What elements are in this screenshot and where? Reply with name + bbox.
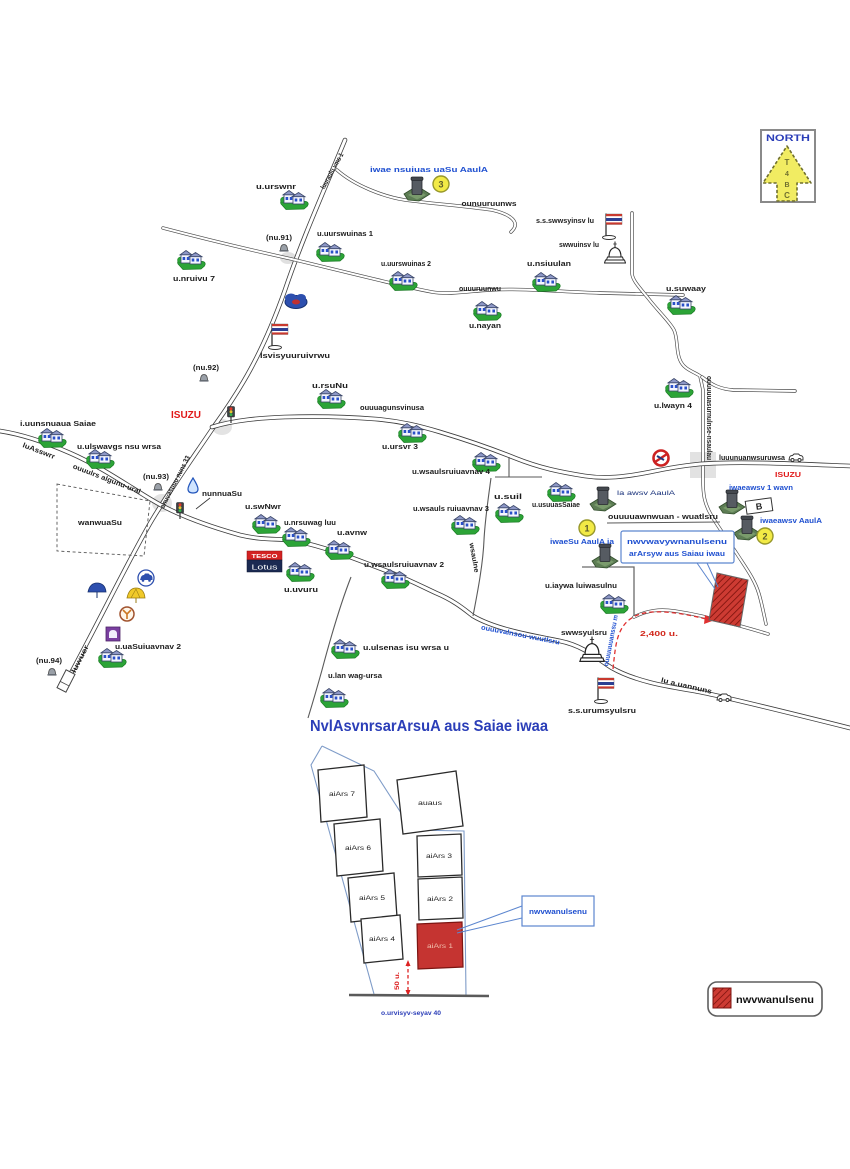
svg-text:u.wsauls ruiuavnav 3: u.wsauls ruiuavnav 3 [413,506,489,513]
svg-text:u.suil: u.suil [494,494,522,501]
svg-text:swwuinsv lu: swwuinsv lu [559,242,599,249]
svg-text:u.avnw: u.avnw [337,530,368,537]
svg-text:u.iaywa luiwasulnu: u.iaywa luiwasulnu [545,583,617,590]
svg-text:u.urswnr: u.urswnr [256,184,296,191]
svg-text:nwvwavywnanulsenu: nwvwavywnanulsenu [627,539,727,546]
svg-text:B: B [784,182,789,189]
svg-text:swwsyulsru: swwsyulsru [561,630,607,637]
svg-text:(nu.91): (nu.91) [266,235,292,242]
svg-text:u.ulswavgs nsu wrsa: u.ulswavgs nsu wrsa [77,444,161,451]
svg-text:nunnuaSu: nunnuaSu [202,491,242,498]
svg-text:u.suwaay: u.suwaay [666,286,706,293]
svg-text:u.rsuNu: u.rsuNu [312,383,348,390]
svg-text:u.uurswuinas 2: u.uurswuinas 2 [381,261,431,268]
svg-text:C: C [784,191,790,200]
svg-text:wanwuaSu: wanwuaSu [77,520,122,527]
svg-text:ouuuuuasurnulnse-nsaulau: ouuuuuasurnulnse-nsaulau [705,376,712,460]
svg-text:u.ursvr 3: u.ursvr 3 [382,444,418,451]
svg-text:iwaeawsv 1 wavn: iwaeawsv 1 wavn [729,485,793,492]
svg-text:T: T [785,158,790,167]
svg-text:(nu.93): (nu.93) [143,474,169,481]
svg-text:aiArs 2: aiArs 2 [427,897,454,903]
svg-text:o.urvisyv-seyav 40: o.urvisyv-seyav 40 [381,1010,441,1017]
svg-text:aiArs 6: aiArs 6 [345,846,372,852]
svg-text:iwaeSu AaulA ia: iwaeSu AaulA ia [550,539,614,546]
svg-text:u.wsaulsruiuavnav 2: u.wsaulsruiuavnav 2 [364,562,444,569]
svg-text:u.wsaulsruiuavnav 4: u.wsaulsruiuavnav 4 [412,469,490,476]
svg-text:NvlAsvnrsarArsuA aus Saiae iwa: NvlAsvnrsarArsuA aus Saiae iwaa [310,718,548,735]
svg-text:u.nruivu 7: u.nruivu 7 [173,276,215,283]
svg-text:aiArs 7: aiArs 7 [329,792,356,798]
svg-text:ISUZU: ISUZU [171,410,201,421]
svg-text:auaus: auaus [418,801,442,807]
svg-text:3: 3 [438,180,443,190]
svg-text:2,400 u.: 2,400 u. [640,629,678,638]
svg-text:NORTH: NORTH [766,133,810,143]
svg-text:luuunuanwsuruwsa: luuunuanwsuruwsa [719,455,785,462]
svg-text:u.uaSuiuavnav 2: u.uaSuiuavnav 2 [115,644,181,651]
svg-text:u.nsiuulan: u.nsiuulan [527,261,571,268]
svg-text:(nu.94): (nu.94) [36,658,62,665]
svg-text:2: 2 [762,532,767,542]
svg-text:u.usuuasSaiae: u.usuuasSaiae [532,502,580,509]
svg-text:u.ulsenas isu wrsa u: u.ulsenas isu wrsa u [363,645,449,652]
svg-text:aiArs 4: aiArs 4 [369,937,396,943]
svg-text:u.nayan: u.nayan [469,323,501,330]
svg-text:iwaeawsv AaulA: iwaeawsv AaulA [760,518,822,525]
svg-text:u.uurswuinas 1: u.uurswuinas 1 [317,231,373,238]
svg-text:4: 4 [785,171,789,178]
svg-text:ouuuruunwu: ouuuruunwu [459,286,501,293]
svg-text:s.s.swwsyinsv lu: s.s.swwsyinsv lu [536,218,594,225]
svg-text:lsvisyuuruivrwu: lsvisyuuruivrwu [260,353,330,360]
svg-text:arArsyw aus Saiau iwau: arArsyw aus Saiau iwau [629,551,725,558]
svg-text:la awsv AaulA: la awsv AaulA [617,490,676,497]
svg-text:i.uunsnuaua Saiae: i.uunsnuaua Saiae [20,421,96,428]
svg-text:nwvwanulsenu: nwvwanulsenu [736,995,814,1006]
svg-text:u.nrsuwag luu: u.nrsuwag luu [284,520,336,527]
svg-text:aiArs 1: aiArs 1 [427,944,454,950]
svg-text:u.lwayn 4: u.lwayn 4 [654,403,692,410]
svg-text:s.s.urumsyulsru: s.s.urumsyulsru [568,708,636,715]
svg-text:ouuuagunsvinusa: ouuuagunsvinusa [360,405,424,412]
svg-text:TESCO: TESCO [252,554,279,560]
svg-text:aiArs 3: aiArs 3 [426,854,453,860]
svg-text:u.swNwr: u.swNwr [245,504,281,511]
svg-text:u.lan wag-ursa: u.lan wag-ursa [328,673,382,680]
svg-text:ounuuruunws: ounuuruunws [462,201,517,208]
svg-text:1: 1 [584,524,589,534]
svg-text:nwvwanulsenu: nwvwanulsenu [529,909,587,916]
svg-text:(nu.92): (nu.92) [193,365,219,372]
svg-text:ouuuuawnwuan - wuatlsru: ouuuuawnwuan - wuatlsru [608,514,718,521]
svg-text:iwae nsuiuas uaSu AaulA: iwae nsuiuas uaSu AaulA [370,167,488,174]
svg-text:Lotus: Lotus [252,563,278,572]
svg-text:u.uvuru: u.uvuru [284,587,318,594]
svg-text:aiArs 5: aiArs 5 [359,896,386,902]
svg-text:50 u.: 50 u. [395,972,401,990]
svg-text:ISUZU: ISUZU [775,470,801,479]
